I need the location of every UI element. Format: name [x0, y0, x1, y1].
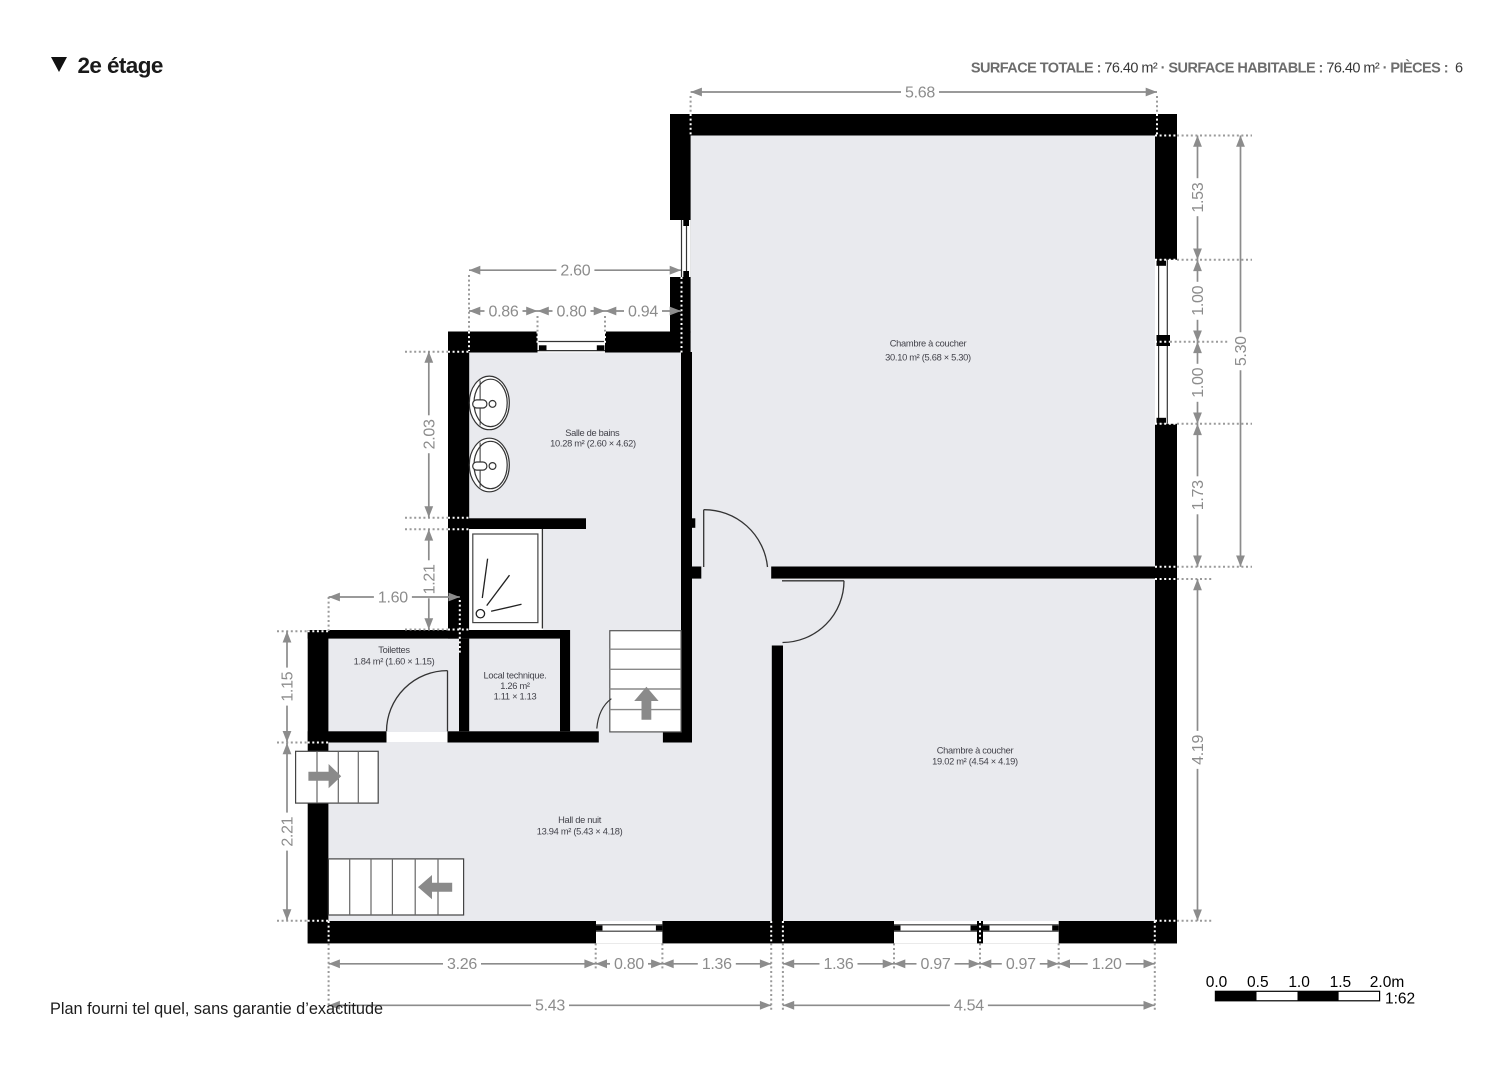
svg-text:1.00: 1.00	[1190, 367, 1207, 397]
svg-text:0.5: 0.5	[1247, 974, 1269, 991]
svg-text:2.0m: 2.0m	[1370, 974, 1404, 991]
svg-text:2e étage: 2e étage	[78, 53, 163, 78]
svg-text:1:62: 1:62	[1385, 991, 1415, 1008]
svg-text:1.36: 1.36	[824, 956, 854, 973]
svg-text:0.97: 0.97	[1006, 956, 1036, 973]
svg-text:0.80: 0.80	[614, 956, 644, 973]
svg-text:19.02 m² (4.54 × 4.19): 19.02 m² (4.54 × 4.19)	[932, 757, 1018, 767]
svg-text:SURFACE TOTALE : 76.40 m² · SU: SURFACE TOTALE : 76.40 m² · SURFACE HABI…	[971, 60, 1463, 77]
svg-text:1.60: 1.60	[378, 589, 408, 606]
svg-text:Plan fourni tel quel, sans gar: Plan fourni tel quel, sans garantie d’ex…	[50, 1000, 383, 1018]
svg-text:0.97: 0.97	[921, 956, 951, 973]
svg-text:Local technique.: Local technique.	[484, 671, 547, 681]
svg-text:30.10 m² (5.68 × 5.30): 30.10 m² (5.68 × 5.30)	[885, 353, 971, 363]
svg-text:Chambre à coucher: Chambre à coucher	[890, 339, 967, 349]
svg-text:Hall de nuit: Hall de nuit	[558, 815, 602, 825]
svg-text:10.28 m² (2.60 × 4.62): 10.28 m² (2.60 × 4.62)	[550, 439, 636, 449]
svg-text:1.53: 1.53	[1190, 182, 1207, 212]
svg-text:0.94: 0.94	[628, 303, 658, 320]
svg-text:13.94 m² (5.43 × 4.18): 13.94 m² (5.43 × 4.18)	[537, 827, 623, 837]
svg-text:1.11 × 1.13: 1.11 × 1.13	[494, 692, 537, 702]
svg-text:Chambre à coucher: Chambre à coucher	[937, 746, 1014, 756]
svg-text:5.43: 5.43	[535, 998, 565, 1015]
svg-text:1.5: 1.5	[1330, 974, 1352, 991]
svg-text:2.60: 2.60	[560, 263, 590, 280]
svg-text:Salle de bains: Salle de bains	[565, 428, 620, 438]
svg-text:1.84 m² (1.60 × 1.15): 1.84 m² (1.60 × 1.15)	[354, 657, 435, 667]
svg-text:Toilettes: Toilettes	[378, 645, 410, 655]
svg-text:1.15: 1.15	[280, 671, 297, 701]
svg-text:1.21: 1.21	[421, 564, 438, 594]
svg-text:5.68: 5.68	[905, 85, 935, 102]
svg-text:1.00: 1.00	[1190, 285, 1207, 315]
svg-text:1.36: 1.36	[702, 956, 732, 973]
svg-text:4.19: 4.19	[1190, 735, 1207, 765]
svg-text:2.03: 2.03	[421, 419, 438, 449]
svg-text:1.0: 1.0	[1288, 974, 1310, 991]
svg-text:5.30: 5.30	[1233, 336, 1250, 366]
svg-text:0.80: 0.80	[557, 303, 587, 320]
svg-text:4.54: 4.54	[954, 998, 984, 1015]
svg-text:0.86: 0.86	[489, 303, 519, 320]
svg-text:1.26 m²: 1.26 m²	[500, 681, 530, 691]
svg-text:1.73: 1.73	[1190, 480, 1207, 510]
svg-text:0.0: 0.0	[1206, 974, 1228, 991]
svg-text:3.26: 3.26	[447, 956, 477, 973]
svg-text:2.21: 2.21	[280, 816, 297, 846]
svg-text:1.20: 1.20	[1092, 956, 1122, 973]
